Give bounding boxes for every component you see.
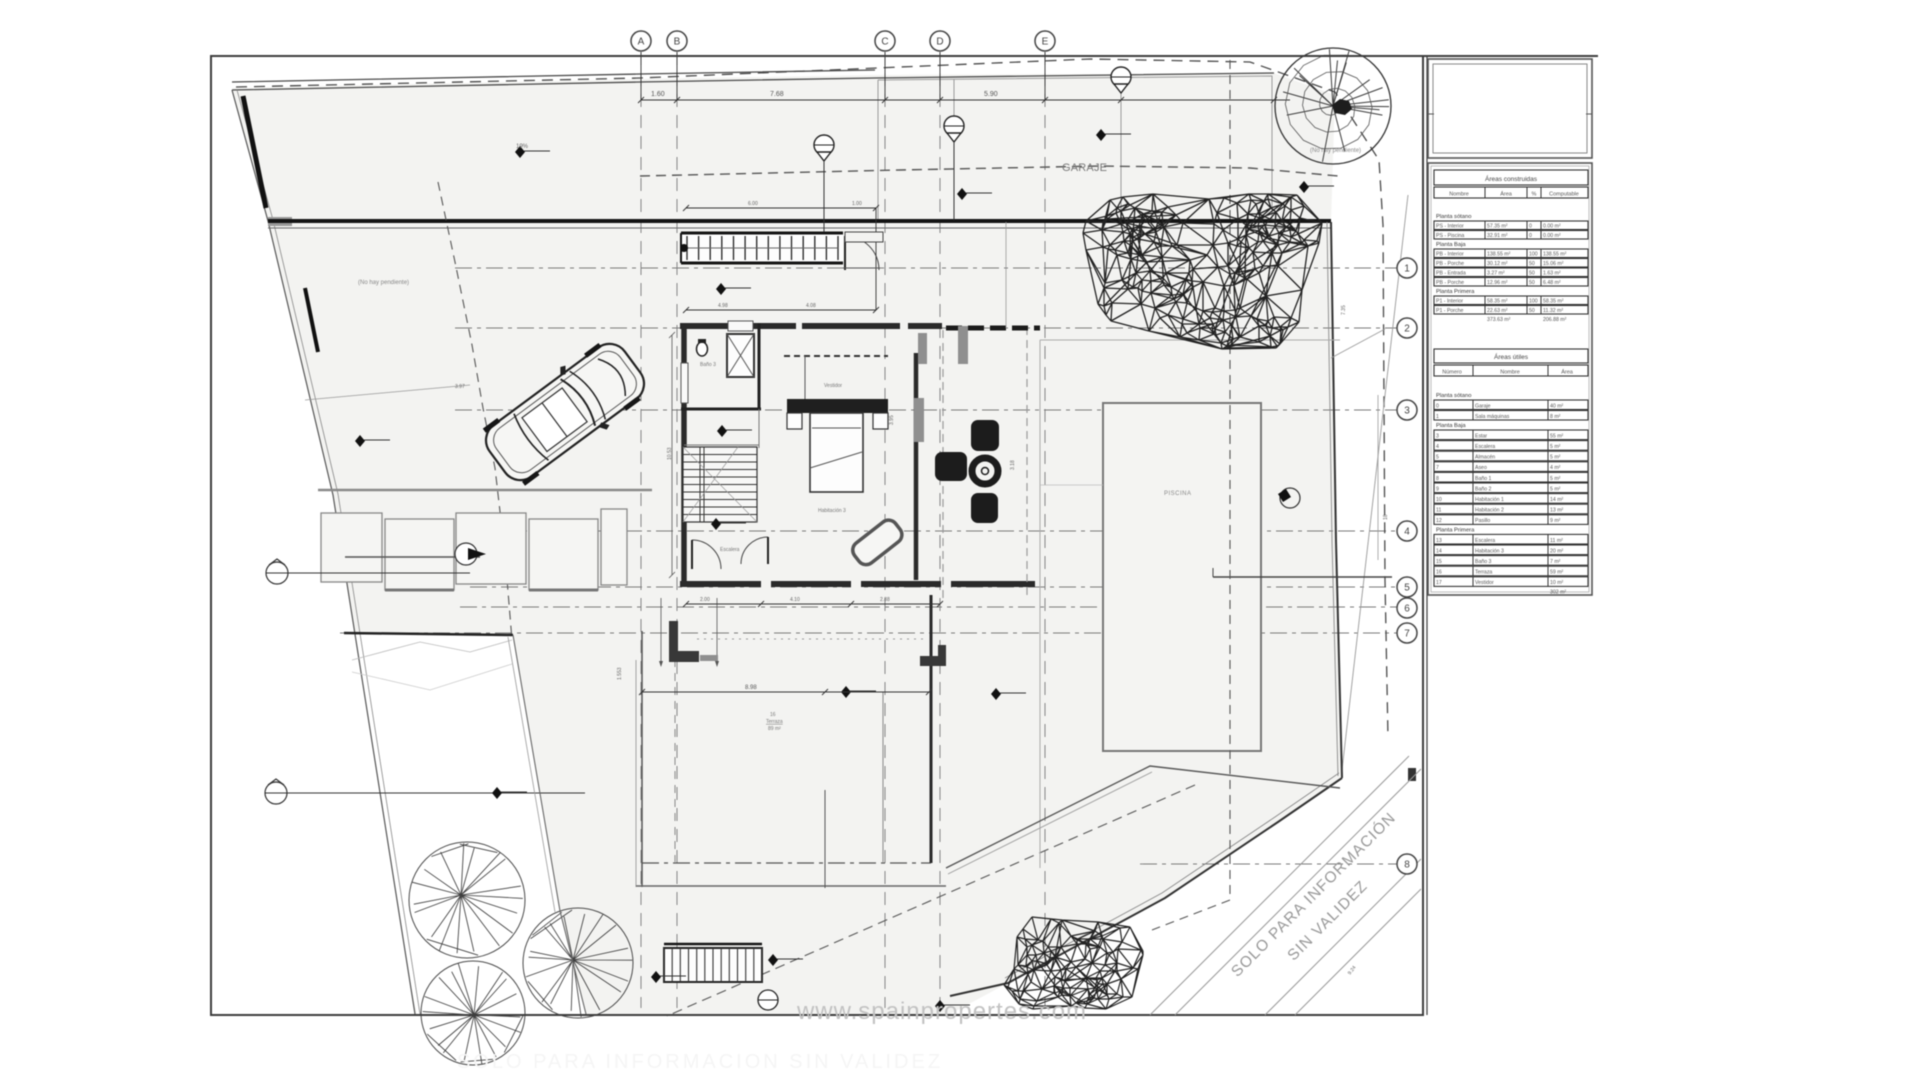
- svg-text:1.60: 1.60: [651, 91, 665, 98]
- svg-text:14 m²: 14 m²: [1550, 497, 1564, 503]
- svg-text:2: 2: [1404, 324, 1410, 335]
- svg-text:50: 50: [1529, 261, 1535, 267]
- svg-text:Computable: Computable: [1549, 192, 1579, 198]
- svg-text:(No hay pendiente): (No hay pendiente): [358, 280, 409, 286]
- svg-text:2.00: 2.00: [700, 597, 710, 603]
- svg-text:Sala máquinas: Sala máquinas: [1475, 414, 1510, 420]
- svg-text:5 m²: 5 m²: [1550, 455, 1561, 461]
- svg-text:9 m²: 9 m²: [1550, 518, 1561, 524]
- svg-text:138.55 m²: 138.55 m²: [1543, 251, 1567, 257]
- svg-text:4: 4: [1404, 527, 1410, 538]
- svg-text:Vestidor: Vestidor: [1475, 580, 1494, 586]
- svg-text:58.35 m²: 58.35 m²: [1543, 298, 1564, 304]
- svg-text:89 m²: 89 m²: [768, 726, 781, 732]
- svg-text:1.63 m²: 1.63 m²: [1543, 270, 1561, 276]
- svg-text:5: 5: [1436, 455, 1439, 461]
- svg-text:Baño 2: Baño 2: [1475, 486, 1492, 492]
- svg-text:Escalera: Escalera: [720, 547, 740, 553]
- svg-text:C: C: [881, 37, 888, 48]
- svg-text:59 m²: 59 m²: [1550, 570, 1564, 576]
- svg-text:PISCINA: PISCINA: [1164, 491, 1192, 497]
- svg-text:10: 10: [1436, 497, 1442, 503]
- svg-text:302 m²: 302 m²: [1550, 589, 1566, 595]
- svg-text:138.55 m²: 138.55 m²: [1487, 251, 1511, 257]
- svg-text:4: 4: [1436, 444, 1439, 450]
- svg-text:D: D: [936, 37, 943, 48]
- svg-text:57.35 m²: 57.35 m²: [1487, 223, 1508, 229]
- svg-text:Vestidor: Vestidor: [824, 383, 842, 389]
- svg-text:B: B: [674, 37, 681, 48]
- svg-text:5 m²: 5 m²: [1550, 476, 1561, 482]
- svg-text:SOLO PARA INFORMACION SIN VALI: SOLO PARA INFORMACION SIN VALIDEZ: [457, 1051, 943, 1073]
- svg-text:373.63 m²: 373.63 m²: [1487, 317, 1511, 323]
- svg-text:%: %: [1532, 192, 1537, 198]
- svg-text:Planta sótano: Planta sótano: [1436, 393, 1471, 399]
- svg-text:0: 0: [1529, 233, 1532, 239]
- svg-text:7: 7: [1436, 465, 1439, 471]
- svg-text:7.68: 7.68: [770, 91, 784, 98]
- svg-text:Escalera: Escalera: [1475, 444, 1495, 450]
- svg-text:Baño 3: Baño 3: [1475, 559, 1492, 565]
- svg-text:Áreas útiles: Áreas útiles: [1494, 352, 1529, 361]
- svg-text:Nombre: Nombre: [1500, 370, 1520, 376]
- svg-text:Planta Baja: Planta Baja: [1436, 242, 1466, 248]
- svg-text:4.98: 4.98: [718, 303, 728, 309]
- svg-text:4.10: 4.10: [790, 597, 800, 603]
- svg-text:0.00 m²: 0.00 m²: [1543, 223, 1561, 229]
- svg-text:13 m²: 13 m²: [1550, 508, 1564, 514]
- svg-text:5 m²: 5 m²: [1550, 486, 1561, 492]
- svg-text:12: 12: [1436, 518, 1442, 524]
- svg-text:2.88: 2.88: [880, 597, 890, 603]
- svg-text:PB - Entrada: PB - Entrada: [1436, 270, 1466, 276]
- svg-text:6: 6: [1404, 604, 1410, 615]
- svg-text:1.553: 1.553: [617, 667, 623, 680]
- svg-text:PB - Interior: PB - Interior: [1436, 251, 1464, 257]
- svg-text:Baño 1: Baño 1: [1475, 476, 1492, 482]
- svg-text:16: 16: [770, 712, 776, 718]
- svg-text:4 m²: 4 m²: [1550, 465, 1561, 471]
- svg-text:8: 8: [1436, 476, 1439, 482]
- svg-text:Área: Área: [1561, 369, 1574, 376]
- svg-text:50: 50: [1529, 270, 1535, 276]
- svg-text:P1 - Interior: P1 - Interior: [1436, 298, 1463, 304]
- svg-text:15.06 m²: 15.06 m²: [1543, 261, 1564, 267]
- svg-text:(No hay pendiente): (No hay pendiente): [1310, 148, 1361, 154]
- svg-text:32.91 m²: 32.91 m²: [1487, 233, 1508, 239]
- svg-text:PS - Piscina: PS - Piscina: [1436, 233, 1464, 239]
- svg-text:6.48 m²: 6.48 m²: [1543, 280, 1561, 286]
- svg-text:13: 13: [1436, 538, 1442, 544]
- svg-text:5.90: 5.90: [984, 91, 998, 98]
- svg-text:8 m²: 8 m²: [1550, 414, 1561, 420]
- svg-text:20 m²: 20 m²: [1550, 548, 1564, 554]
- svg-text:0: 0: [1436, 403, 1439, 409]
- svg-text:1: 1: [1436, 414, 1439, 420]
- svg-text:A: A: [638, 37, 645, 48]
- svg-text:Planta sótano: Planta sótano: [1436, 214, 1471, 220]
- svg-text:55 m²: 55 m²: [1550, 433, 1564, 439]
- svg-text:3.27 m²: 3.27 m²: [1487, 270, 1505, 276]
- svg-text:3: 3: [1436, 433, 1439, 439]
- svg-text:16: 16: [1436, 570, 1442, 576]
- svg-text:8.98: 8.98: [745, 685, 757, 691]
- svg-text:50: 50: [1529, 308, 1535, 314]
- svg-text:40 m²: 40 m²: [1550, 403, 1564, 409]
- svg-text:Habitación 2: Habitación 2: [1475, 508, 1504, 514]
- svg-text:11.32 m²: 11.32 m²: [1543, 308, 1563, 314]
- svg-text:P1 - Porche: P1 - Porche: [1436, 308, 1464, 314]
- svg-text:Almacén: Almacén: [1475, 455, 1495, 461]
- svg-text:Habitación 3: Habitación 3: [1475, 548, 1504, 554]
- svg-text:Área: Área: [1500, 191, 1513, 198]
- svg-text:E: E: [1042, 37, 1049, 48]
- svg-text:14: 14: [1436, 548, 1442, 554]
- svg-text:3: 3: [1404, 406, 1410, 417]
- svg-text:Número: Número: [1442, 370, 1462, 376]
- svg-text:GARAJE: GARAJE: [1062, 162, 1107, 174]
- svg-text:22.63 m²: 22.63 m²: [1487, 308, 1508, 314]
- svg-text:PB - Porche: PB - Porche: [1436, 261, 1464, 267]
- svg-text:Aseo: Aseo: [1475, 465, 1487, 471]
- svg-text:3.95: 3.95: [889, 415, 895, 425]
- svg-text:Planta Primera: Planta Primera: [1436, 289, 1475, 295]
- svg-text:3.18: 3.18: [1010, 460, 1016, 470]
- svg-text:15: 15: [1436, 559, 1442, 565]
- svg-text:PS - Interior: PS - Interior: [1436, 223, 1464, 229]
- svg-text:7: 7: [1404, 629, 1410, 640]
- svg-text:5: 5: [1404, 583, 1410, 594]
- svg-text:11 m²: 11 m²: [1550, 538, 1563, 544]
- svg-text:18: 18: [1383, 514, 1389, 520]
- svg-text:17: 17: [1436, 580, 1442, 586]
- svg-text:7.35: 7.35: [1341, 305, 1347, 315]
- svg-text:100: 100: [1529, 298, 1538, 304]
- svg-text:6.00: 6.00: [748, 201, 758, 207]
- svg-text:Estar: Estar: [1475, 433, 1487, 439]
- svg-text:30.12 m²: 30.12 m²: [1487, 261, 1508, 267]
- svg-text:10 m²: 10 m²: [1550, 580, 1564, 586]
- svg-text:Baño 3: Baño 3: [700, 362, 716, 368]
- svg-text:Planta Primera: Planta Primera: [1436, 527, 1475, 533]
- svg-text:7 m²: 7 m²: [1550, 559, 1561, 565]
- svg-text:4.08: 4.08: [806, 303, 816, 309]
- svg-text:9: 9: [1436, 486, 1439, 492]
- svg-text:58.35 m²: 58.35 m²: [1487, 298, 1508, 304]
- svg-text:19%: 19%: [516, 144, 529, 150]
- svg-text:Terraza: Terraza: [1475, 570, 1492, 576]
- svg-text:Pasillo: Pasillo: [1475, 518, 1490, 524]
- svg-text:Terraza: Terraza: [766, 719, 783, 725]
- svg-text:3.97: 3.97: [455, 384, 465, 390]
- svg-text:PB - Porche: PB - Porche: [1436, 280, 1464, 286]
- svg-text:1: 1: [1404, 264, 1410, 275]
- svg-text:50: 50: [1529, 280, 1535, 286]
- svg-text:www.spainpropertes.com: www.spainpropertes.com: [796, 998, 1087, 1025]
- svg-text:Garaje: Garaje: [1475, 403, 1491, 409]
- svg-text:Nombre: Nombre: [1449, 192, 1469, 198]
- svg-text:Planta Baja: Planta Baja: [1436, 423, 1466, 429]
- svg-text:1.00: 1.00: [852, 201, 862, 207]
- svg-text:Escalera: Escalera: [1475, 538, 1495, 544]
- svg-text:Habitación 1: Habitación 1: [1475, 497, 1504, 503]
- svg-text:0: 0: [1529, 223, 1532, 229]
- svg-text:Áreas construidas: Áreas construidas: [1485, 174, 1538, 183]
- svg-text:8: 8: [1404, 860, 1410, 871]
- svg-text:0.00 m²: 0.00 m²: [1543, 233, 1561, 239]
- svg-text:12.96 m²: 12.96 m²: [1487, 280, 1508, 286]
- svg-text:Habitación 3: Habitación 3: [818, 508, 846, 514]
- svg-text:5 m²: 5 m²: [1550, 444, 1561, 450]
- svg-text:11: 11: [1436, 508, 1441, 514]
- svg-text:206.88 m²: 206.88 m²: [1543, 317, 1567, 323]
- svg-text:100: 100: [1529, 251, 1538, 257]
